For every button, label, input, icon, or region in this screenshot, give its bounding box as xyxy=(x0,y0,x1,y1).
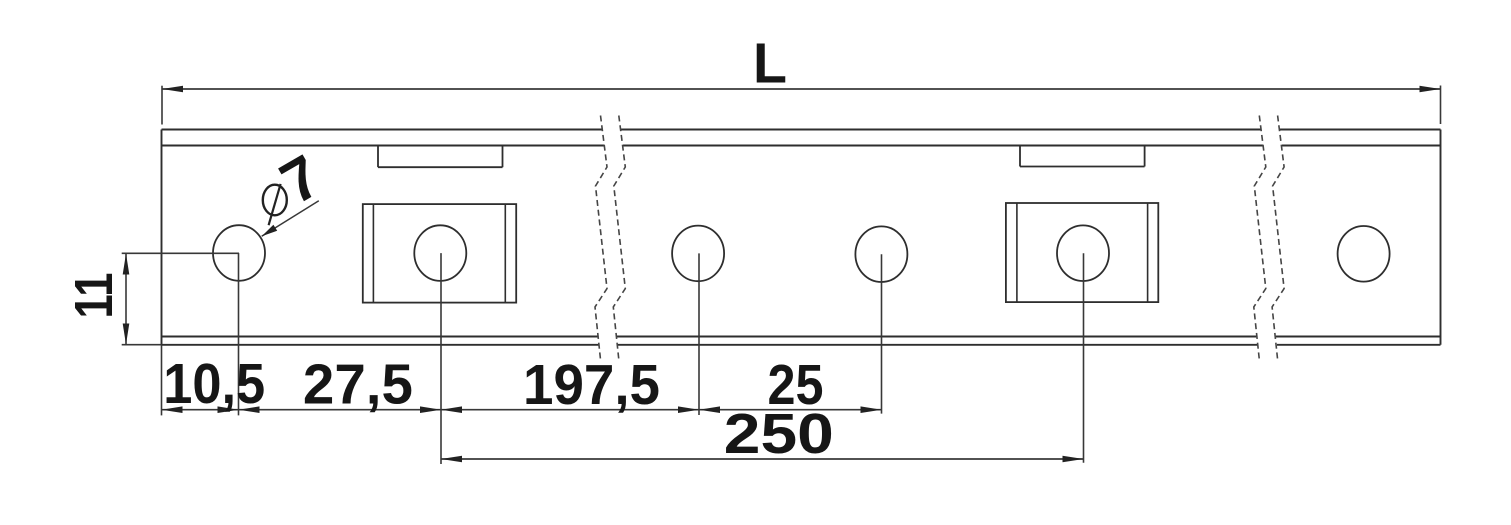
svg-text:27,5: 27,5 xyxy=(303,353,413,417)
svg-text:11: 11 xyxy=(64,273,124,319)
svg-text:L: L xyxy=(753,32,787,96)
svg-text:250: 250 xyxy=(724,402,834,466)
svg-text:10,5: 10,5 xyxy=(163,352,265,416)
svg-text:197,5: 197,5 xyxy=(523,353,660,417)
